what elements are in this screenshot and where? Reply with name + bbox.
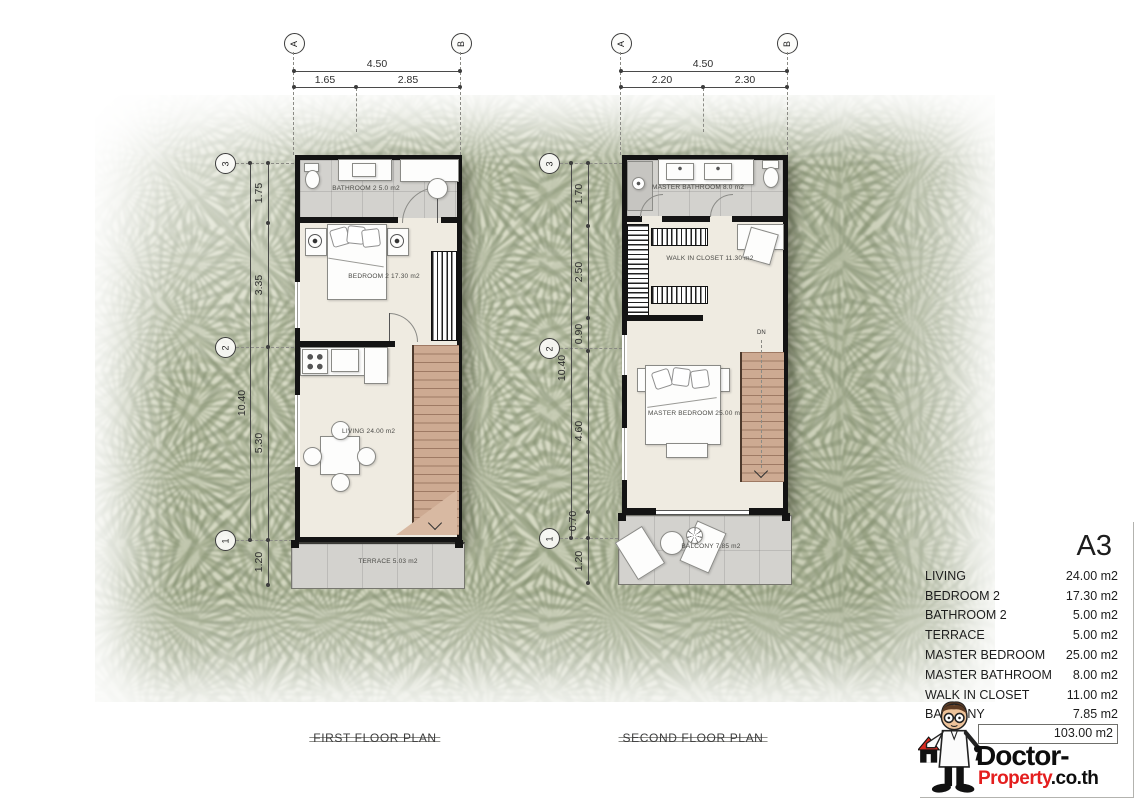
grid-line <box>703 88 704 132</box>
bed-bench <box>666 443 708 458</box>
dining-table <box>320 436 360 475</box>
kitchen-sink <box>331 349 359 372</box>
dim-text: 2.20 <box>652 74 672 86</box>
window <box>622 428 627 480</box>
living-label: LIVING 24.00 m2 <box>342 428 395 435</box>
toilet <box>763 167 779 188</box>
pillow <box>690 369 710 389</box>
brand-property: Property <box>978 768 1051 789</box>
speaker-icon <box>390 234 404 248</box>
master-bathroom-label: MASTER BATHROOM 8.0 m2 <box>652 184 744 191</box>
brand-suffix: .co.th <box>1051 768 1099 789</box>
dim-tick <box>248 161 252 165</box>
dim-tick <box>586 510 590 514</box>
terrace-floor <box>291 542 465 589</box>
bedroom-south-wall <box>622 508 656 515</box>
dim-tick <box>586 316 590 320</box>
vanity-sink <box>704 163 732 180</box>
closet-wall <box>627 315 703 321</box>
dim-tick <box>785 85 789 89</box>
stair-centerline <box>761 340 762 468</box>
doctor-character-icon <box>918 698 984 806</box>
grid-line <box>620 52 621 155</box>
dim-text: 0.70 <box>567 511 579 531</box>
legend-row: BEDROOM 217.30 m2 <box>925 586 1118 606</box>
unit-code: A3 <box>1077 530 1112 563</box>
grid-bubble-label: 1 <box>544 536 554 541</box>
window <box>622 335 627 375</box>
sheet-border <box>1133 522 1134 798</box>
room-area: 25.00 m2 <box>1066 648 1118 662</box>
stair-upper-flight <box>431 251 457 341</box>
dim-tick <box>586 224 590 228</box>
room-area: 5.00 m2 <box>1073 608 1118 622</box>
dim-line <box>268 163 269 585</box>
dim-text: 4.50 <box>367 58 387 70</box>
grid-bubble-a-plan1: A <box>284 33 305 54</box>
dim-text: 1.70 <box>573 184 585 204</box>
dining-chair <box>357 447 376 466</box>
dim-text: 0.90 <box>573 324 585 344</box>
floor-plan-sheet: A B 4.50 1.65 2.85 3 2 1 10.40 1.75 3.35… <box>0 0 1140 806</box>
dim-tick <box>266 221 270 225</box>
grid-bubble-label: B <box>456 40 466 46</box>
stair-down-flight <box>740 352 784 482</box>
dim-line <box>621 71 787 72</box>
dim-text: 3.35 <box>253 275 265 295</box>
grid-bubble-2-plan1: 2 <box>215 337 236 358</box>
room-name: MASTER BEDROOM <box>925 648 1045 662</box>
dim-line <box>294 71 461 72</box>
dim-tick <box>586 581 590 585</box>
dim-tick <box>458 69 462 73</box>
dim-text: 10.40 <box>556 355 568 381</box>
dim-tick <box>785 69 789 73</box>
room-name: BATHROOM 2 <box>925 608 1007 622</box>
kitchen-cabinet <box>364 347 388 384</box>
dim-text: 1.20 <box>573 551 585 571</box>
balcony-label: BALCONY 7.85 m2 <box>681 543 740 550</box>
grid-line <box>236 540 292 541</box>
bathroom-wall <box>732 216 783 222</box>
dim-tick <box>619 85 623 89</box>
bathroom2-counter <box>400 159 459 182</box>
room-name: BEDROOM 2 <box>925 589 1000 603</box>
door-leaf <box>389 313 390 341</box>
grid-bubble-3-plan1: 3 <box>215 153 236 174</box>
grid-line <box>460 52 461 155</box>
dining-chair <box>303 447 322 466</box>
speaker-icon <box>308 234 322 248</box>
grid-bubble-a-plan2: A <box>611 33 632 54</box>
window <box>295 395 300 467</box>
grid-line <box>293 52 294 155</box>
shower-head <box>632 177 645 190</box>
dim-tick <box>266 538 270 542</box>
grid-bubble-label: B <box>782 40 792 46</box>
vanity-sink <box>666 163 694 180</box>
bedroom2-label: BEDROOM 2 17.30 m2 <box>348 273 420 280</box>
dim-tick <box>586 161 590 165</box>
grid-line <box>356 88 357 132</box>
dining-chair <box>331 473 350 492</box>
legend-row: TERRACE5.00 m2 <box>925 625 1118 645</box>
dim-tick <box>569 536 573 540</box>
dim-line <box>571 163 572 538</box>
grid-line <box>236 163 294 164</box>
dim-text: 1.20 <box>253 552 265 572</box>
dim-tick <box>248 538 252 542</box>
stove <box>302 349 328 374</box>
walk-in-closet-label: WALK IN CLOSET 11.30 m2 <box>666 255 753 262</box>
vanity-sink <box>352 163 376 177</box>
grid-bubble-label: 1 <box>220 538 230 543</box>
dim-tick <box>701 85 705 89</box>
bathroom2-label: BATHROOM 2 5.0 m2 <box>332 185 400 192</box>
grid-bubble-b-plan2: B <box>777 33 798 54</box>
room-area: 8.00 m2 <box>1073 668 1118 682</box>
terrace-post <box>291 540 299 548</box>
dim-tick <box>266 161 270 165</box>
legend-row: BATHROOM 25.00 m2 <box>925 606 1118 626</box>
grid-bubble-label: A <box>616 40 626 46</box>
grid-line <box>236 347 294 348</box>
bathroom-wall <box>662 216 710 222</box>
dim-text: 4.50 <box>693 58 713 70</box>
terrace-post <box>455 540 463 548</box>
dim-tick <box>266 345 270 349</box>
wardrobe-unit <box>627 224 649 320</box>
grid-bubble-label: 2 <box>220 345 230 350</box>
bathroom2-wall <box>300 217 398 223</box>
dim-text: 4.60 <box>573 421 585 441</box>
grid-bubble-label: 3 <box>544 161 554 166</box>
grid-line <box>787 52 788 155</box>
room-area: 24.00 m2 <box>1066 569 1118 583</box>
dim-tick <box>292 85 296 89</box>
photo-white-fade <box>95 95 995 702</box>
legend-row: MASTER BATHROOM8.00 m2 <box>925 665 1118 685</box>
dim-tick <box>586 536 590 540</box>
sheet-border <box>920 797 1134 798</box>
dim-tick <box>458 85 462 89</box>
dim-text: 10.40 <box>236 390 248 416</box>
dim-text: 2.30 <box>735 74 755 86</box>
legend-row: LIVING24.00 m2 <box>925 566 1118 586</box>
legend-row: MASTER BEDROOM25.00 m2 <box>925 645 1118 665</box>
dim-line <box>294 87 461 88</box>
dim-tick <box>569 161 573 165</box>
grid-bubble-label: 3 <box>220 161 230 166</box>
dim-text: 2.50 <box>573 262 585 282</box>
dim-text: 1.65 <box>315 74 335 86</box>
bathroom2-wall <box>441 217 457 223</box>
dim-text: 2.85 <box>398 74 418 86</box>
grid-bubble-b-plan1: B <box>451 33 472 54</box>
grid-bubble-1-plan1: 1 <box>215 530 236 551</box>
room-name: MASTER BATHROOM <box>925 668 1052 682</box>
room-name: LIVING <box>925 569 966 583</box>
window <box>295 282 300 328</box>
grid-line <box>560 348 622 349</box>
dim-line <box>250 163 251 540</box>
dim-tick <box>266 583 270 587</box>
brand-name-bottom: Property.co.th <box>978 768 1098 790</box>
room-area: 17.30 m2 <box>1066 589 1118 603</box>
second-floor-caption: SECOND FLOOR PLAN <box>619 731 768 745</box>
grid-bubble-1-plan2: 1 <box>539 528 560 549</box>
room-name: TERRACE <box>925 628 985 642</box>
master-bedroom-label: MASTER BEDROOM 25.00 m2 <box>648 410 744 417</box>
pillow <box>361 228 381 248</box>
grid-bubble-3-plan2: 3 <box>539 153 560 174</box>
first-floor-caption: FIRST FLOOR PLAN <box>309 731 440 745</box>
balcony-post <box>782 513 790 521</box>
room-area: 5.00 m2 <box>1073 628 1118 642</box>
dim-tick <box>619 69 623 73</box>
grid-bubble-label: 2 <box>544 346 554 351</box>
dim-text: 5.30 <box>253 433 265 453</box>
dim-tick <box>354 85 358 89</box>
pillow <box>671 367 691 387</box>
round-basin <box>427 178 448 199</box>
toilet <box>305 170 320 189</box>
dim-text: 1.75 <box>253 183 265 203</box>
wardrobe-unit <box>651 228 708 246</box>
bedroom-south-wall <box>749 508 783 515</box>
stair-dn-label: DN <box>757 330 766 336</box>
dim-tick <box>586 349 590 353</box>
doctor-property-logo: Doctor- Property.co.th <box>918 694 1140 806</box>
terrace-label: TERRACE 5.03 m2 <box>358 558 417 565</box>
palm-grove-photo <box>95 95 995 702</box>
wardrobe-unit <box>651 286 708 304</box>
dim-tick <box>292 69 296 73</box>
parasol-top <box>686 527 703 544</box>
grid-bubble-label: A <box>289 40 299 46</box>
balcony-post <box>618 513 626 521</box>
